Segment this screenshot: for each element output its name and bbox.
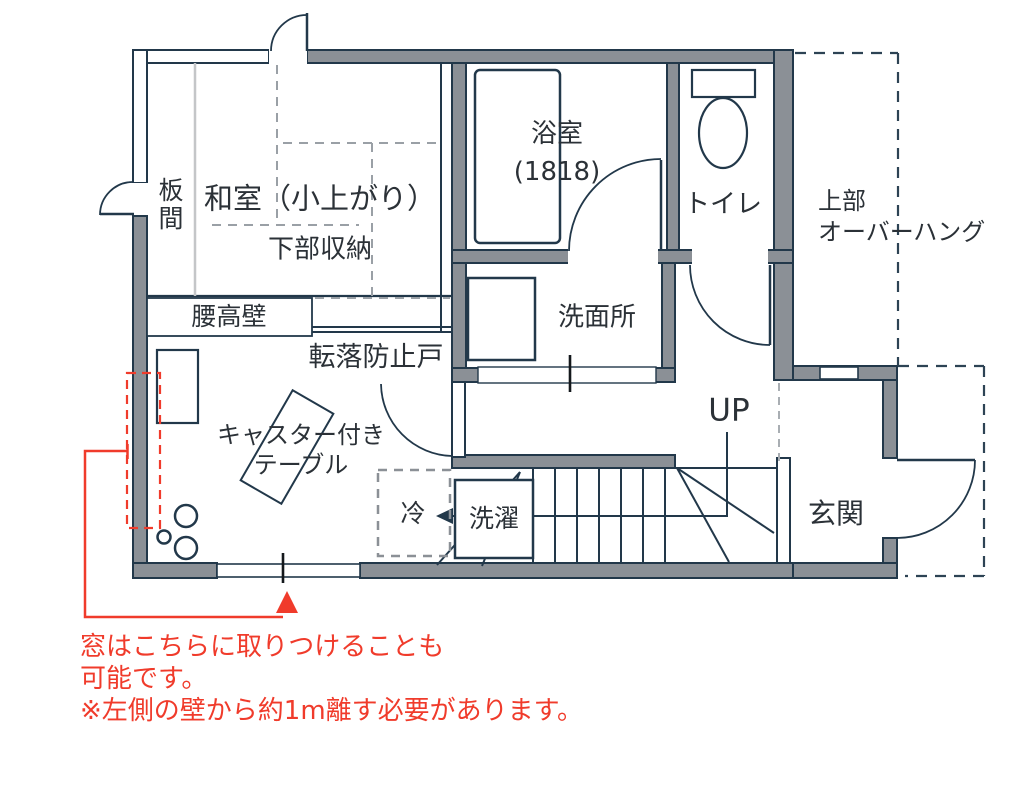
wall-bath-left bbox=[452, 63, 466, 382]
wall-bottom-main bbox=[360, 563, 793, 578]
wall-left-main bbox=[133, 216, 147, 578]
wall-genkan-right-upper bbox=[883, 380, 897, 458]
burner-icon-2 bbox=[158, 531, 171, 544]
genkan-door-arc bbox=[897, 460, 975, 538]
kitchen-counter-icon bbox=[157, 350, 198, 423]
room-label-itama: 板間 bbox=[154, 177, 184, 233]
bath-size: (1818) bbox=[514, 153, 600, 191]
room-label-genkan: 玄関 bbox=[808, 497, 864, 531]
label-koshitaka-wall: 腰高壁 bbox=[191, 302, 266, 332]
room-label-washroom: 洗面所 bbox=[558, 302, 636, 333]
wall-top-left-thin bbox=[133, 50, 269, 63]
window-note: 窓はこちらに取りつけることも 可能です。 ※左側の壁から約1m離す必要があります… bbox=[80, 631, 583, 727]
wall-genkan-bottom bbox=[793, 563, 897, 578]
top-door-opening bbox=[269, 49, 307, 64]
wall-stair-top bbox=[452, 455, 675, 468]
overhang-line1: 上部 bbox=[818, 186, 985, 217]
bath-name: 浴室 bbox=[514, 115, 600, 153]
wall-left-upper-thin bbox=[133, 50, 147, 183]
window-bottom bbox=[217, 564, 360, 577]
bath-door-opening bbox=[568, 249, 658, 264]
toilet-bowl-icon bbox=[699, 98, 747, 168]
hall-door-arc bbox=[381, 384, 452, 456]
toilet-tank-icon bbox=[692, 70, 755, 97]
red-arrow-icon bbox=[276, 591, 298, 613]
room-label-toilet: トイレ bbox=[684, 189, 762, 220]
label-laundry: 洗濯 bbox=[469, 504, 519, 534]
label-fridge: 冷 bbox=[400, 499, 425, 529]
wall-washroom-right bbox=[662, 263, 675, 368]
caster-line2: テーブル bbox=[217, 450, 385, 480]
left-door-opening bbox=[132, 183, 148, 215]
overhang-line2: オーバーハング bbox=[818, 217, 985, 248]
toilet-door-arc bbox=[690, 265, 770, 345]
stair-genkan-pillar bbox=[777, 458, 790, 563]
burner-icon-1 bbox=[175, 505, 197, 527]
label-caster-table: キャスター付き テーブル bbox=[217, 420, 385, 480]
caster-line1: キャスター付き bbox=[217, 420, 385, 450]
window-genkan bbox=[820, 367, 858, 379]
note-line3: ※左側の壁から約1m離す必要があります。 bbox=[80, 695, 583, 727]
hall-door-leaf bbox=[452, 382, 465, 457]
toilet-door-opening bbox=[692, 249, 768, 264]
wall-top-main bbox=[307, 50, 793, 63]
washroom-sliding-opening bbox=[478, 367, 656, 383]
wall-bath-toilet-divider bbox=[667, 63, 679, 250]
wall-bottom-left bbox=[133, 563, 217, 578]
stair-winder-right-2 bbox=[677, 468, 774, 533]
floor-plan-page: 和室（小上がり） 下部収納 板間 腰高壁 転落防止戸 浴室 (1818) トイレ… bbox=[0, 0, 1024, 795]
room-label-washitsu: 和室（小上がり） bbox=[204, 182, 436, 217]
top-door-arc bbox=[271, 15, 307, 51]
note-line1: 窓はこちらに取りつけることも bbox=[80, 631, 583, 663]
label-fall-prevention-door: 転落防止戸 bbox=[309, 342, 444, 374]
left-door-arc bbox=[100, 182, 133, 215]
burner-icon-3 bbox=[175, 537, 197, 559]
washbasin-icon bbox=[468, 278, 535, 360]
room-label-lower-storage: 下部収納 bbox=[268, 234, 372, 265]
label-overhang: 上部 オーバーハング bbox=[818, 186, 985, 248]
note-line2: 可能です。 bbox=[80, 663, 583, 695]
room-label-bath: 浴室 (1818) bbox=[514, 115, 600, 191]
label-up: UP bbox=[708, 392, 749, 429]
wall-right-main bbox=[774, 50, 793, 380]
